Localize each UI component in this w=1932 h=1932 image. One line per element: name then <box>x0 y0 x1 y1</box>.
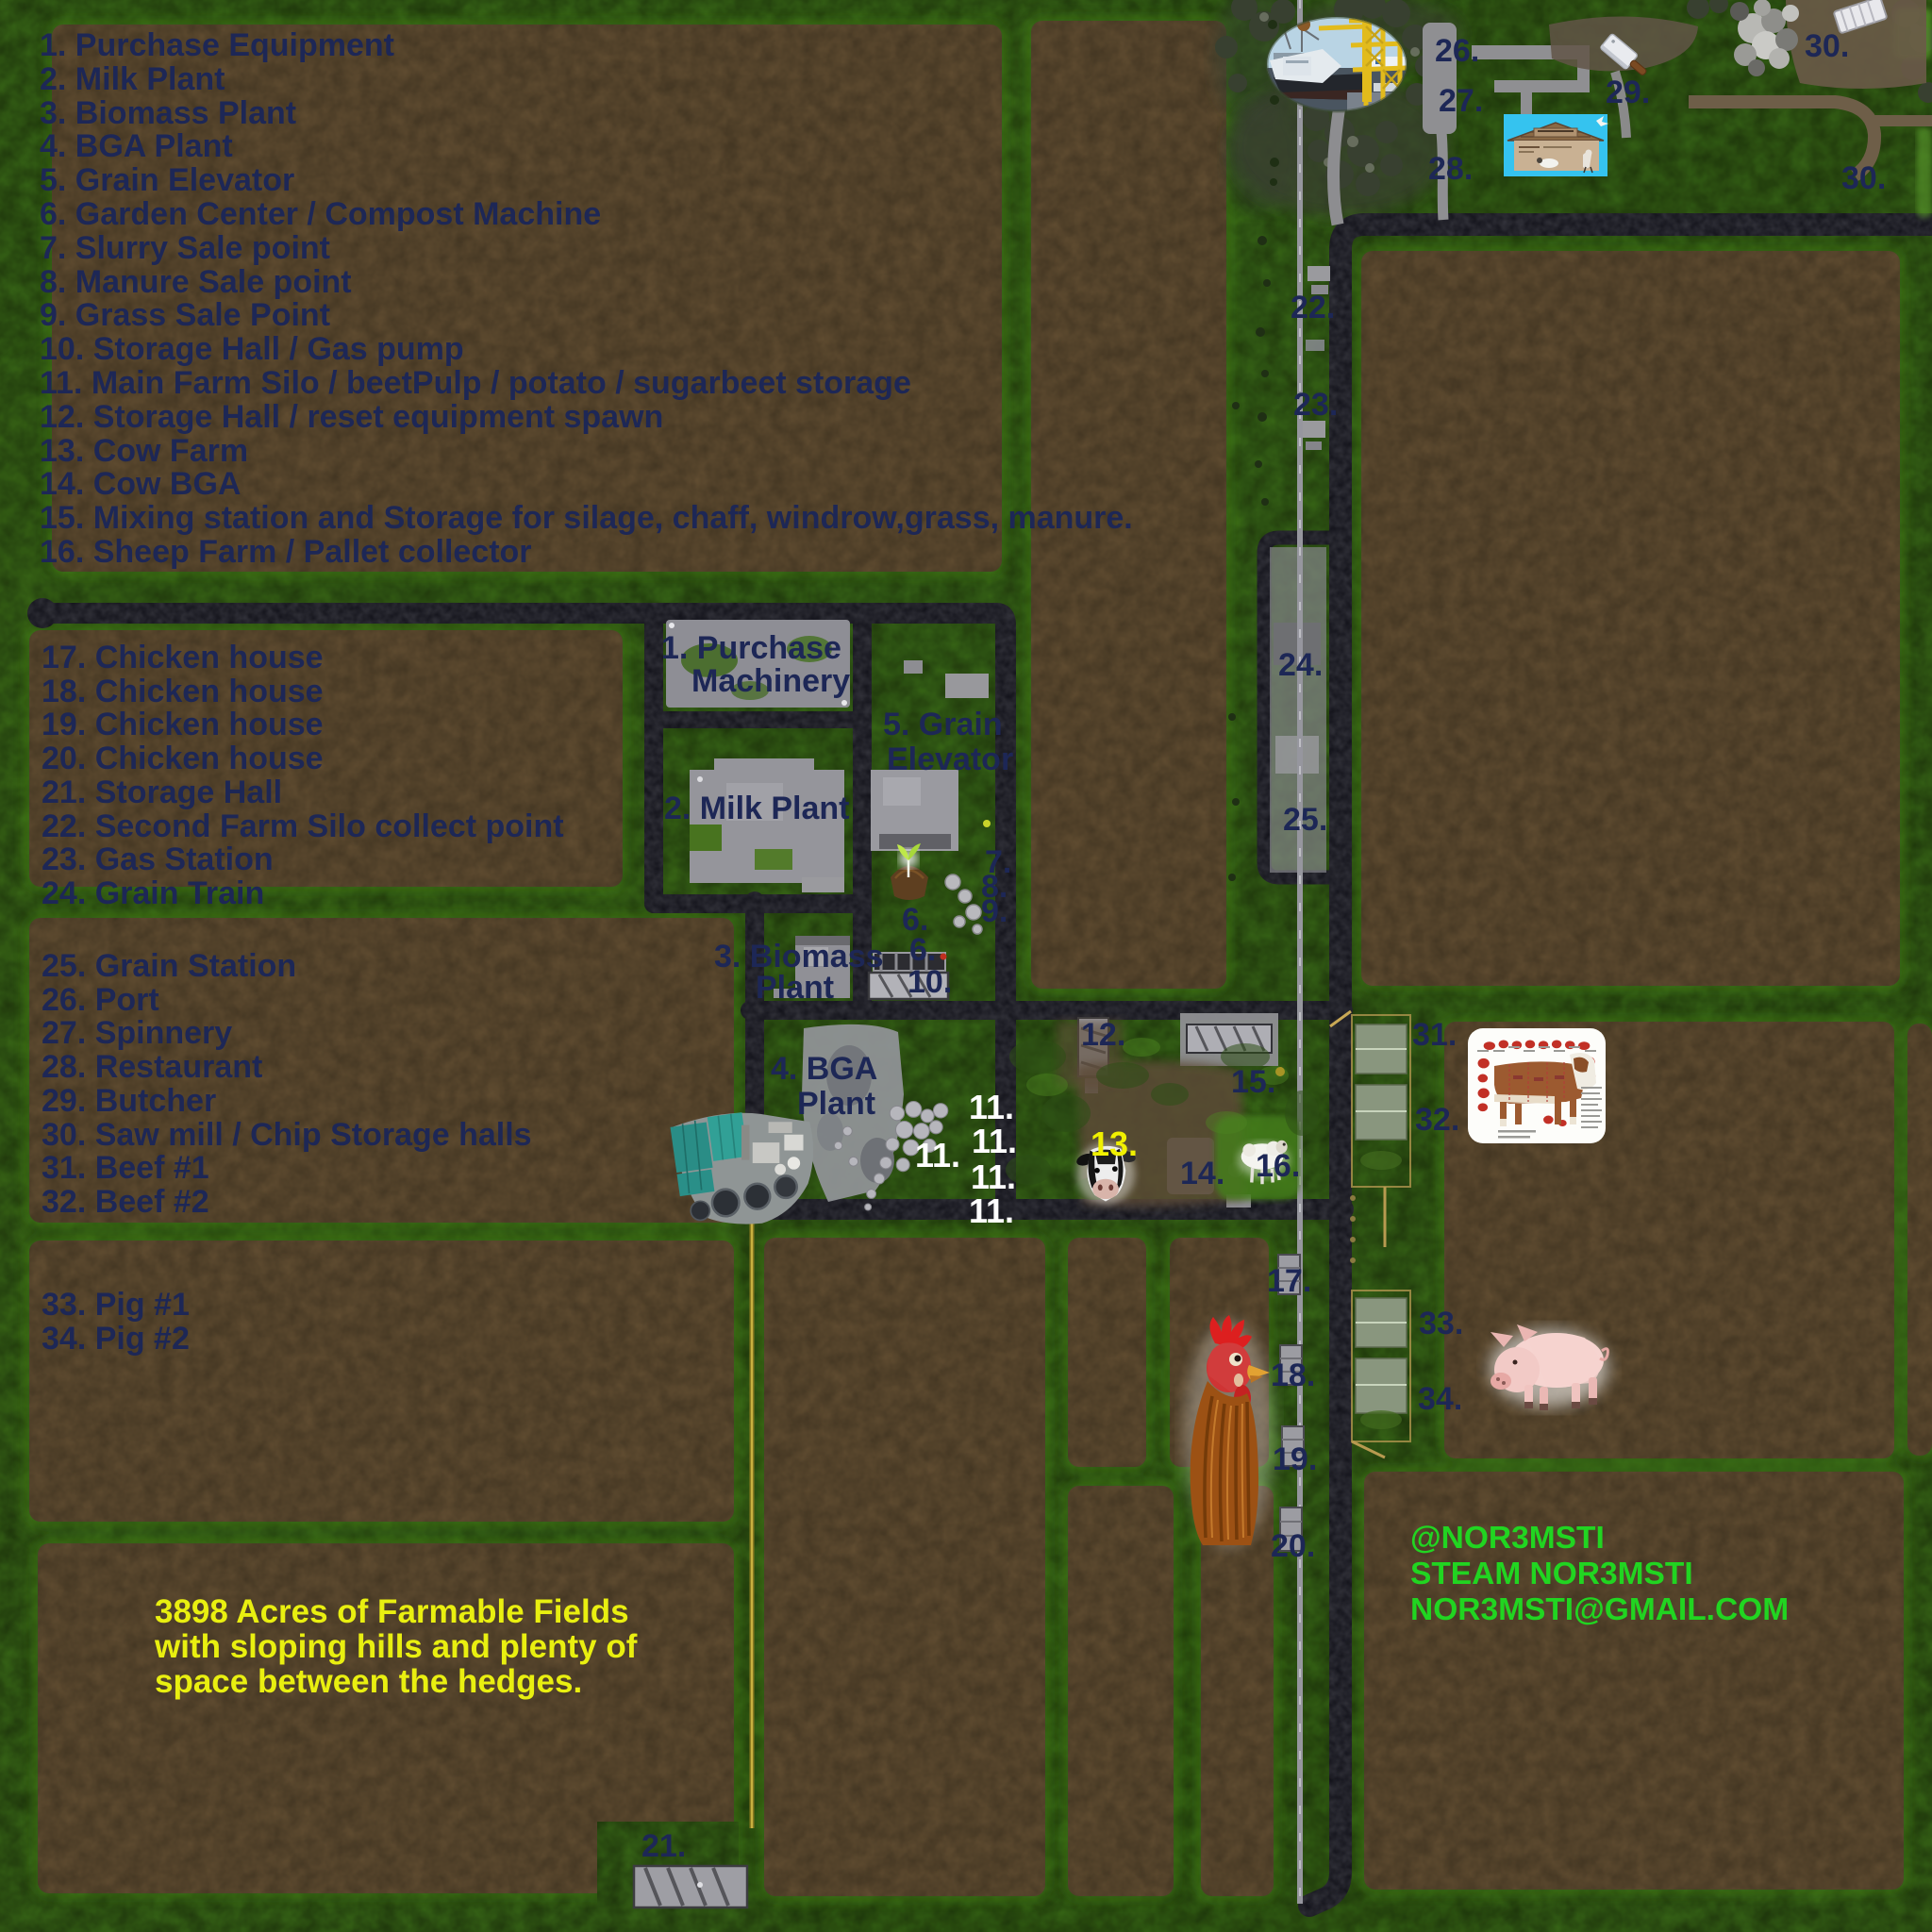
svg-text:11.: 11. <box>969 1088 1014 1126</box>
svg-text:1. Purchase: 1. Purchase <box>661 630 841 666</box>
svg-text:24.: 24. <box>1278 647 1323 683</box>
svg-text:9.: 9. <box>981 893 1008 929</box>
svg-text:10.: 10. <box>908 964 952 1000</box>
svg-text:NOR3MSTI@GMAIL.COM: NOR3MSTI@GMAIL.COM <box>1410 1592 1789 1627</box>
svg-text:34. Pig #2: 34. Pig #2 <box>42 1321 190 1357</box>
svg-text:Plant: Plant <box>797 1086 875 1122</box>
svg-text:1. Purchase Equipment: 1. Purchase Equipment <box>40 27 394 63</box>
svg-text:31. Beef #1: 31. Beef #1 <box>42 1150 209 1186</box>
svg-text:23.: 23. <box>1293 387 1338 423</box>
svg-text:19.: 19. <box>1273 1441 1317 1477</box>
svg-text:9. Grass Sale Point: 9. Grass Sale Point <box>40 297 330 333</box>
svg-text:21.: 21. <box>641 1828 686 1864</box>
svg-text:13.: 13. <box>1091 1124 1138 1163</box>
svg-text:24. Grain Train: 24. Grain Train <box>42 875 264 911</box>
svg-text:7. Slurry Sale point: 7. Slurry Sale point <box>40 230 330 266</box>
svg-text:15. Mixing station and Storage: 15. Mixing station and Storage for silag… <box>40 500 1133 536</box>
svg-text:30.: 30. <box>1805 28 1849 64</box>
svg-text:Machinery: Machinery <box>691 663 850 699</box>
svg-text:11.: 11. <box>969 1191 1014 1230</box>
svg-text:6.: 6. <box>909 932 936 968</box>
svg-text:11.: 11. <box>971 1158 1016 1196</box>
svg-text:16.: 16. <box>1256 1148 1300 1184</box>
svg-text:11.: 11. <box>915 1136 960 1174</box>
svg-text:17. Chicken house: 17. Chicken house <box>42 640 324 675</box>
svg-text:22.: 22. <box>1291 290 1335 325</box>
svg-text:20. Chicken house: 20. Chicken house <box>42 741 324 776</box>
svg-text:@NOR3MSTI: @NOR3MSTI <box>1410 1521 1605 1556</box>
svg-text:29. Butcher: 29. Butcher <box>42 1083 216 1119</box>
svg-text:8. Manure Sale point: 8. Manure Sale point <box>40 264 352 300</box>
svg-text:23. Gas Station: 23. Gas Station <box>42 841 274 877</box>
svg-text:27.: 27. <box>1439 83 1483 119</box>
svg-text:Plant: Plant <box>756 970 834 1006</box>
svg-text:15.: 15. <box>1231 1064 1275 1100</box>
svg-text:18. Chicken house: 18. Chicken house <box>42 674 324 709</box>
svg-text:31.: 31. <box>1412 1017 1457 1053</box>
svg-text:with sloping hills and plenty: with sloping hills and plenty of <box>154 1628 638 1665</box>
svg-text:4. BGA Plant: 4. BGA Plant <box>40 128 233 164</box>
svg-text:13. Cow Farm: 13. Cow Farm <box>40 433 248 469</box>
svg-text:27. Spinnery: 27. Spinnery <box>42 1015 232 1051</box>
svg-text:21. Storage Hall: 21. Storage Hall <box>42 774 282 810</box>
svg-text:3898 Acres of Farmable Fields: 3898 Acres of Farmable Fields <box>155 1593 629 1630</box>
svg-text:28. Restaurant: 28. Restaurant <box>42 1049 262 1085</box>
svg-text:19. Chicken house: 19. Chicken house <box>42 707 324 742</box>
svg-text:5. Grain Elevator: 5. Grain Elevator <box>40 162 294 198</box>
svg-text:29.: 29. <box>1606 75 1650 110</box>
svg-text:30. Saw mill / Chip Storage ha: 30. Saw mill / Chip Storage halls <box>42 1117 532 1153</box>
svg-text:30.: 30. <box>1841 160 1886 196</box>
svg-text:32.: 32. <box>1415 1102 1459 1138</box>
svg-text:space between the hedges.: space between the hedges. <box>155 1663 582 1700</box>
svg-text:17.: 17. <box>1267 1263 1311 1299</box>
svg-text:25. Grain Station: 25. Grain Station <box>42 948 296 984</box>
svg-text:11. Main Farm Silo / beetPulp: 11. Main Farm Silo / beetPulp / potato /… <box>40 365 911 401</box>
svg-text:26. Port: 26. Port <box>42 982 159 1018</box>
svg-text:4. BGA: 4. BGA <box>771 1051 877 1087</box>
svg-text:6. Garden Center / Compost Mac: 6. Garden Center / Compost Machine <box>40 196 601 232</box>
svg-text:28.: 28. <box>1428 151 1473 187</box>
svg-text:26.: 26. <box>1435 33 1479 69</box>
svg-text:2. Milk Plant: 2. Milk Plant <box>40 61 225 97</box>
svg-text:18.: 18. <box>1271 1357 1315 1393</box>
svg-text:25.: 25. <box>1283 802 1327 838</box>
svg-text:12.: 12. <box>1081 1017 1125 1053</box>
svg-text:22. Second Farm Silo collect p: 22. Second Farm Silo collect point <box>42 808 564 844</box>
svg-text:3. Biomass Plant: 3. Biomass Plant <box>40 95 296 131</box>
svg-text:34.: 34. <box>1418 1381 1462 1417</box>
svg-text:12. Storage Hall / reset equip: 12. Storage Hall / reset equipment spawn <box>40 399 663 435</box>
svg-text:33. Pig #1: 33. Pig #1 <box>42 1287 190 1323</box>
svg-text:10. Storage Hall / Gas pump: 10. Storage Hall / Gas pump <box>40 331 464 367</box>
svg-text:20.: 20. <box>1271 1528 1315 1564</box>
svg-text:2. Milk Plant: 2. Milk Plant <box>664 791 850 826</box>
svg-text:Elevator: Elevator <box>887 741 1013 777</box>
svg-text:STEAM NOR3MSTI: STEAM NOR3MSTI <box>1410 1557 1693 1591</box>
svg-text:14. Cow BGA: 14. Cow BGA <box>40 466 241 502</box>
svg-text:5. Grain: 5. Grain <box>883 707 1003 742</box>
svg-text:16. Sheep Farm / Pallet collec: 16. Sheep Farm / Pallet collector <box>40 534 532 570</box>
svg-text:11.: 11. <box>972 1122 1017 1160</box>
svg-text:14.: 14. <box>1180 1156 1224 1191</box>
svg-text:32. Beef #2: 32. Beef #2 <box>42 1184 209 1220</box>
svg-text:33.: 33. <box>1419 1306 1463 1341</box>
